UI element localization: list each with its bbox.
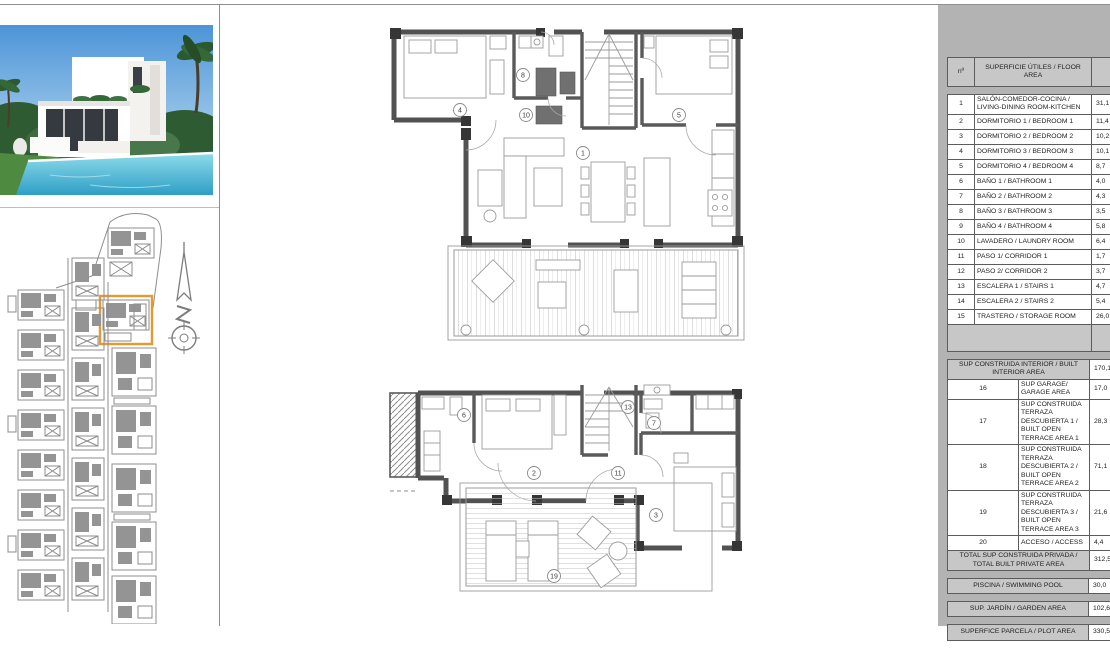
row-label: DORMITORIO 4 / BEDROOM 4 [975, 159, 1092, 174]
row-number: 18 [948, 445, 1019, 490]
row-value: 5,4 [1092, 294, 1110, 309]
row-label: TRASTERO / STORAGE ROOM [975, 309, 1092, 324]
table-row: 2 DORMITORIO 1 / BEDROOM 1 11,4 [948, 114, 1110, 129]
left-column-divider [219, 4, 220, 626]
interior-total-row: SUP CONSTRUIDA INTERIOR / BUILT INTERIOR… [948, 359, 1110, 379]
interior-total-value: 170,1 [1090, 359, 1110, 379]
row-number: 1 [948, 95, 975, 115]
table-row: 8 BAÑO 3 / BATHROOM 3 3,5 [948, 204, 1110, 219]
row-value: 28,3 [1090, 399, 1110, 444]
north-arrow-icon [168, 242, 200, 354]
row-number: 10 [948, 234, 975, 249]
areas-table-main: 1 SALÓN-COMEDOR-COCINA / LIVING-DINING R… [947, 94, 1110, 352]
room-label-bath6: 6 [462, 413, 466, 420]
private-total-value: 312,5 [1090, 551, 1110, 571]
table-row: 16 SUP GARAGE/ GARAGE AREA 17,0 [948, 379, 1110, 399]
row-value: 4,3 [1092, 189, 1110, 204]
room-label-corridor11: 11 [614, 471, 621, 478]
empty-band-row [948, 324, 1110, 351]
table-row: 19 SUP CONSTRUIDA TERRAZA DESCUBIERTA 3 … [948, 490, 1110, 535]
summary-label: SUP. JARDÍN / GARDEN AREA [947, 601, 1089, 617]
room-label-laundry10: 10 [522, 113, 530, 120]
row-value: 26,0 [1092, 309, 1110, 324]
summary-row-pool: PISCINA / SWIMMING POOL 30,0 [947, 578, 1110, 594]
row-label: SUP CONSTRUIDA TERRAZA DESCUBIERTA 1 / B… [1019, 399, 1090, 444]
plan-sheet: { "floor_plans": { "upper": { "labels": … [0, 0, 1110, 626]
areas-table-header: nº SUPERFICIE ÚTILES / FLOOR AREA TIPO [947, 57, 1110, 87]
header-area: SUPERFICIE ÚTILES / FLOOR AREA [975, 58, 1092, 87]
row-number: 8 [948, 204, 975, 219]
room-label-living: 1 [581, 151, 585, 158]
row-value: 17,0 [1090, 379, 1110, 399]
table-row: 5 DORMITORIO 4 / BEDROOM 4 8,7 [948, 159, 1110, 174]
row-number: 9 [948, 219, 975, 234]
row-label: LAVADERO / LAUNDRY ROOM [975, 234, 1092, 249]
row-number: 19 [948, 490, 1019, 535]
row-value: 1,7 [1092, 249, 1110, 264]
row-number: 11 [948, 249, 975, 264]
summary-value: 30,0 [1089, 578, 1110, 594]
table-row: 7 BAÑO 2 / BATHROOM 2 4,3 [948, 189, 1110, 204]
table-row: 10 LAVADERO / LAUNDRY ROOM 6,4 [948, 234, 1110, 249]
row-number: 12 [948, 264, 975, 279]
row-number: 2 [948, 114, 975, 129]
photo-bottom-divider [0, 207, 219, 208]
row-label: SUP CONSTRUIDA TERRAZA DESCUBIERTA 2 / B… [1019, 445, 1090, 490]
table-row: 3 DORMITORIO 2 / BEDROOM 2 10,2 [948, 129, 1110, 144]
row-label: PASO 1/ CORRIDOR 1 [975, 249, 1092, 264]
row-value: 3,7 [1092, 264, 1110, 279]
room-label-bedroom4: 4 [458, 108, 462, 115]
lower-floor-plan: 2 3 6 7 11 13 19 [386, 383, 751, 626]
summary-label: SUPERFICE PARCELA / PLOT AREA [947, 624, 1089, 640]
room-label-stairs13: 13 [624, 405, 632, 412]
row-number: 5 [948, 159, 975, 174]
private-total-row: TOTAL SUP CONSTRUIDA PRIVADA / TOTAL BUI… [948, 551, 1110, 571]
row-label: DORMITORIO 2 / BEDROOM 2 [975, 129, 1092, 144]
row-number: 16 [948, 379, 1019, 399]
summary-row-garden: SUP. JARDÍN / GARDEN AREA 102,6 [947, 601, 1110, 617]
site-plan [6, 212, 214, 624]
row-value: 21,6 [1090, 490, 1110, 535]
table-row: 6 BAÑO 1 / BATHROOM 1 4,0 [948, 174, 1110, 189]
summary-row-plot: SUPERFICE PARCELA / PLOT AREA 330,5 [947, 624, 1110, 640]
row-value: 8,7 [1092, 159, 1110, 174]
header-tipo: TIPO [1092, 58, 1110, 87]
row-value: 11,4 [1092, 114, 1110, 129]
row-label: SALÓN-COMEDOR-COCINA / LIVING-DINING ROO… [975, 95, 1092, 115]
table-row: 13 ESCALERA 1 / STAIRS 1 4,7 [948, 279, 1110, 294]
row-label: BAÑO 2 / BATHROOM 2 [975, 189, 1092, 204]
row-value: 10,2 [1092, 129, 1110, 144]
areas-table-built: SUP CONSTRUIDA INTERIOR / BUILT INTERIOR… [947, 359, 1110, 571]
row-label: DORMITORIO 3 / BEDROOM 3 [975, 144, 1092, 159]
room-label-bedroom5: 5 [677, 113, 681, 120]
row-label: ESCALERA 1 / STAIRS 1 [975, 279, 1092, 294]
table-row: 12 PASO 2/ CORRIDOR 2 3,7 [948, 264, 1110, 279]
row-value: 10,1 [1092, 144, 1110, 159]
header-num: nº [948, 58, 975, 87]
row-number: 3 [948, 129, 975, 144]
table-row: 15 TRASTERO / STORAGE ROOM 26,0 [948, 309, 1110, 324]
room-label-bedroom3: 3 [654, 513, 658, 520]
room-label-terrace19: 19 [550, 574, 558, 581]
table-row: 1 SALÓN-COMEDOR-COCINA / LIVING-DINING R… [948, 95, 1110, 115]
table-row: 9 BAÑO 4 / BATHROOM 4 5,8 [948, 219, 1110, 234]
row-label: SUP CONSTRUIDA TERRAZA DESCUBIERTA 3 / B… [1019, 490, 1090, 535]
interior-total-label: SUP CONSTRUIDA INTERIOR / BUILT INTERIOR… [948, 359, 1090, 379]
row-label: ESCALERA 2 / STAIRS 2 [975, 294, 1092, 309]
row-number: 13 [948, 279, 975, 294]
upper-floor-plan: 1 4 5 8 10 [386, 20, 751, 355]
table-row: 20 ACCESO / ACCESS 4,4 [948, 536, 1110, 551]
row-label: PASO 2/ CORRIDOR 2 [975, 264, 1092, 279]
row-label: ACCESO / ACCESS [1019, 536, 1090, 551]
row-value: 31,1 [1092, 95, 1110, 115]
summary-value: 102,6 [1089, 601, 1110, 617]
table-row: 14 ESCALERA 2 / STAIRS 2 5,4 [948, 294, 1110, 309]
row-number: 6 [948, 174, 975, 189]
row-value: 71,1 [1090, 445, 1110, 490]
table-row: 4 DORMITORIO 3 / BEDROOM 3 10,1 [948, 144, 1110, 159]
row-number: 14 [948, 294, 975, 309]
row-number: 17 [948, 399, 1019, 444]
row-number: 4 [948, 144, 975, 159]
row-value: 6,4 [1092, 234, 1110, 249]
row-value: 4,0 [1092, 174, 1110, 189]
row-label: BAÑO 1 / BATHROOM 1 [975, 174, 1092, 189]
room-label-bath7: 7 [652, 421, 656, 428]
row-label: BAÑO 4 / BATHROOM 4 [975, 219, 1092, 234]
row-value: 3,5 [1092, 204, 1110, 219]
summary-value: 330,5 [1089, 624, 1110, 640]
row-value: 4,4 [1090, 536, 1110, 551]
room-label-bedroom2: 2 [532, 471, 536, 478]
areas-panel: nº SUPERFICIE ÚTILES / FLOOR AREA TIPO 1… [938, 5, 1110, 626]
room-label-bath8: 8 [521, 73, 525, 80]
row-label: DORMITORIO 1 / BEDROOM 1 [975, 114, 1092, 129]
villa-exterior-render [0, 25, 213, 195]
row-label: BAÑO 3 / BATHROOM 3 [975, 204, 1092, 219]
summary-label: PISCINA / SWIMMING POOL [947, 578, 1089, 594]
row-value: 5,8 [1092, 219, 1110, 234]
row-value: 4,7 [1092, 279, 1110, 294]
table-row: 11 PASO 1/ CORRIDOR 1 1,7 [948, 249, 1110, 264]
private-total-label: TOTAL SUP CONSTRUIDA PRIVADA / TOTAL BUI… [948, 551, 1090, 571]
row-number: 7 [948, 189, 975, 204]
row-label: SUP GARAGE/ GARAGE AREA [1019, 379, 1090, 399]
row-number: 15 [948, 309, 975, 324]
table-row: 18 SUP CONSTRUIDA TERRAZA DESCUBIERTA 2 … [948, 445, 1110, 490]
table-row: 17 SUP CONSTRUIDA TERRAZA DESCUBIERTA 1 … [948, 399, 1110, 444]
row-number: 20 [948, 536, 1019, 551]
